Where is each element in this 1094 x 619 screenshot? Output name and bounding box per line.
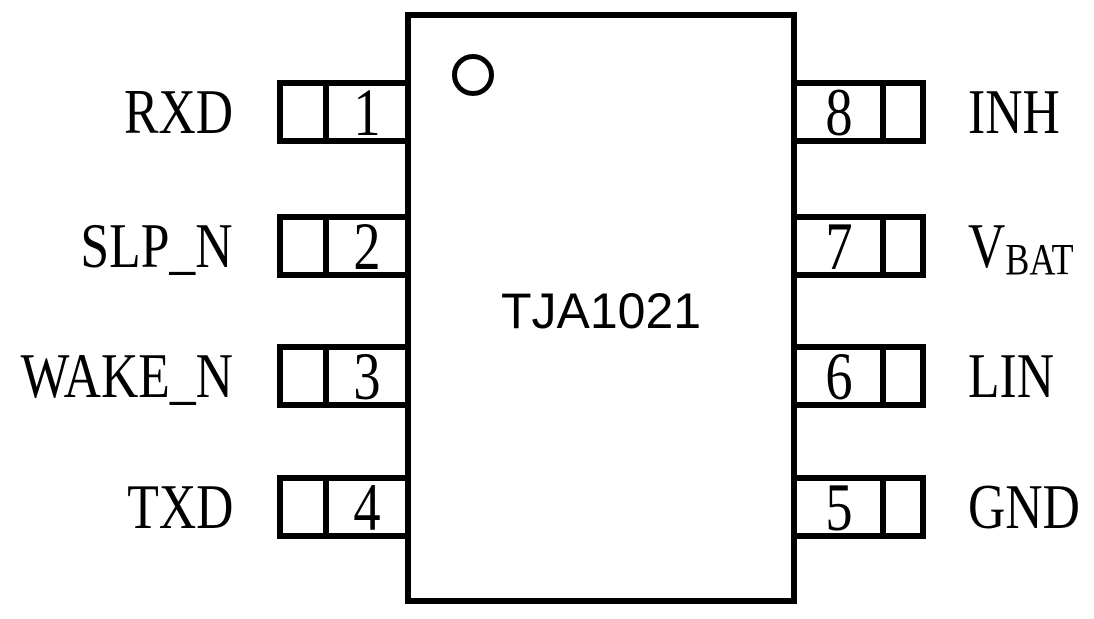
pin-lead-outer: [880, 481, 920, 533]
pin-number: 4: [329, 481, 405, 533]
pin-8-label: INH: [968, 80, 1094, 144]
pin-2-label: SLP_N: [0, 214, 233, 278]
pin-label-text: SLP_N: [81, 210, 233, 283]
pin-label-text: INH: [968, 76, 1060, 149]
pin-label-text: RXD: [124, 76, 233, 149]
pin-lead-outer: [283, 86, 329, 138]
pin-number: 3: [329, 350, 405, 402]
pin-lead-outer: [880, 220, 920, 272]
pin-label-text: LIN: [968, 340, 1054, 413]
pin-label-text: TXD: [127, 471, 233, 544]
pin-3-label: WAKE_N: [0, 344, 233, 408]
pin-lead-outer: [880, 350, 920, 402]
pin-lead-outer: [283, 220, 329, 272]
pin-lead-outer: [283, 350, 329, 402]
pin-number: 5: [797, 481, 880, 533]
pin-number: 6: [797, 350, 880, 402]
pin-5-lead-box: 5: [791, 475, 926, 539]
pin-7-lead-box: 7: [791, 214, 926, 278]
pin-number: 7: [797, 220, 880, 272]
ic-pinout-diagram: TJA1021 RXD 1 SLP_N 2 WAKE_N 3 TXD 4 INH…: [0, 0, 1094, 619]
pin-lead-outer: [880, 86, 920, 138]
pin-label-text: WAKE_N: [21, 340, 233, 413]
pin-3-lead-box: 3: [277, 344, 411, 408]
pins-layer: RXD 1 SLP_N 2 WAKE_N 3 TXD 4 INH 8 VBAT …: [0, 0, 1094, 619]
pin-number: 2: [329, 220, 405, 272]
pin-label-text: GND: [968, 471, 1080, 544]
pin-5-label: GND: [968, 475, 1094, 539]
pin-2-lead-box: 2: [277, 214, 411, 278]
pin-4-lead-box: 4: [277, 475, 411, 539]
pin-number: 8: [797, 86, 880, 138]
pin-1-lead-box: 1: [277, 80, 411, 144]
pin-6-lead-box: 6: [791, 344, 926, 408]
pin-label-text: VBAT: [968, 210, 1074, 283]
pin-7-label: VBAT: [968, 214, 1094, 278]
pin-lead-outer: [283, 481, 329, 533]
pin-8-lead-box: 8: [791, 80, 926, 144]
pin-number: 1: [329, 86, 405, 138]
pin-4-label: TXD: [0, 475, 233, 539]
pin-1-label: RXD: [0, 80, 233, 144]
pin-6-label: LIN: [968, 344, 1094, 408]
